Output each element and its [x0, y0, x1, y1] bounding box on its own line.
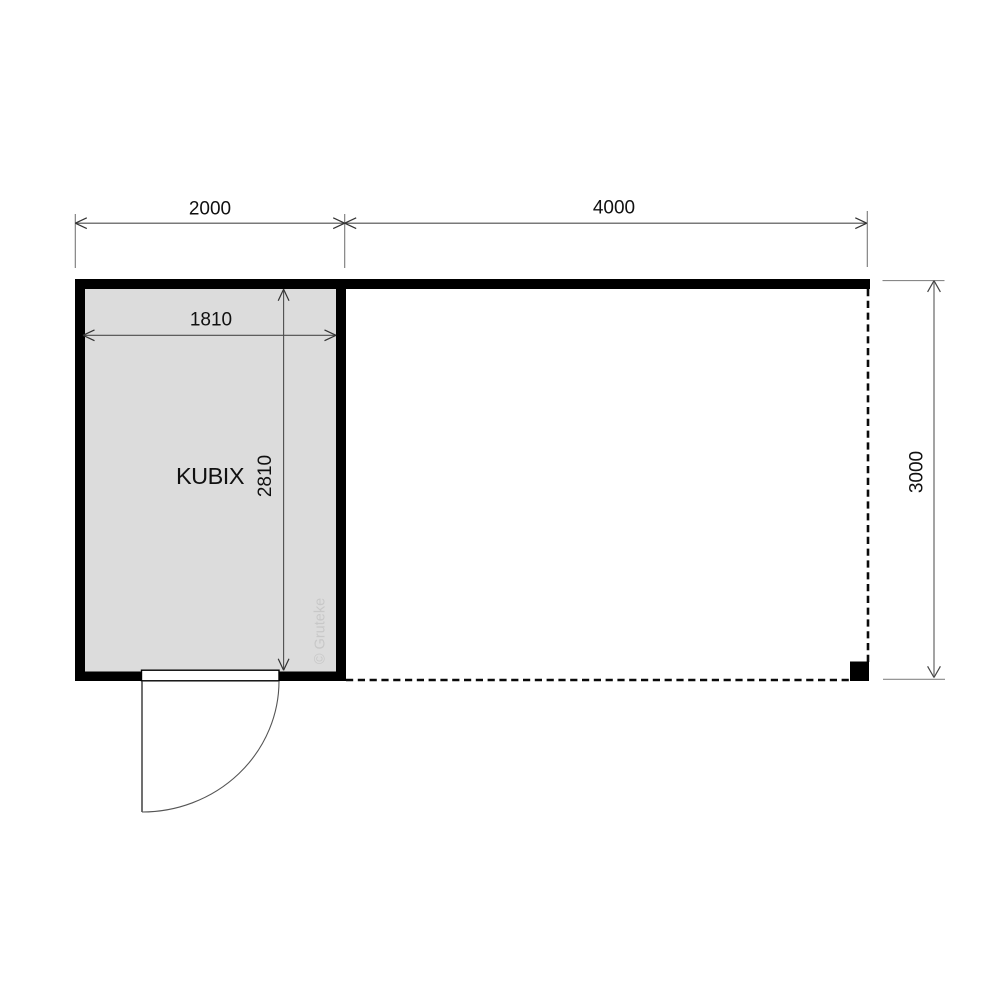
svg-text:© Gruteke: © Gruteke: [312, 598, 328, 664]
svg-text:1810: 1810: [190, 310, 232, 331]
svg-text:2810: 2810: [255, 455, 276, 497]
svg-text:2000: 2000: [189, 199, 231, 220]
svg-text:KUBIX: KUBIX: [176, 463, 245, 489]
svg-text:4000: 4000: [593, 198, 635, 219]
svg-text:3000: 3000: [907, 451, 928, 493]
